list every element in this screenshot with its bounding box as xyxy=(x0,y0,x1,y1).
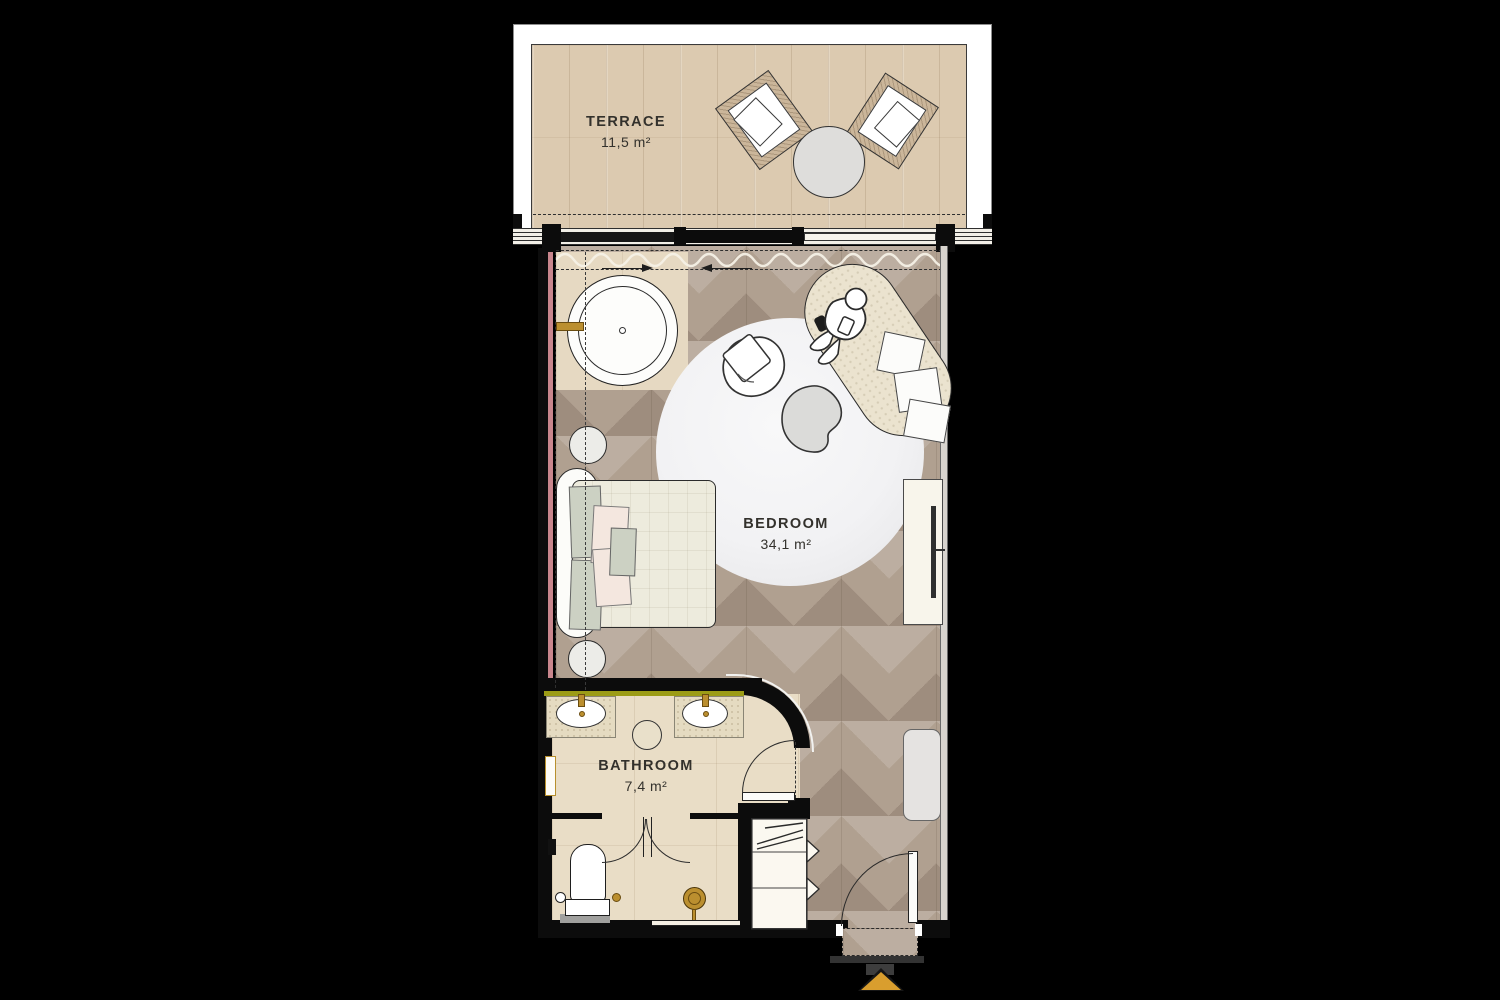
entry-jamb-right xyxy=(915,924,922,936)
slide-arrow-left-line xyxy=(712,268,752,269)
closet-left-wall xyxy=(738,803,752,932)
toilet-bowl xyxy=(570,844,606,902)
sliding-glass-panel-left xyxy=(558,232,678,242)
bathroom-door-leaf xyxy=(742,792,795,801)
tv-mount xyxy=(936,549,945,551)
bedroom-label: BEDROOM 34,1 m² xyxy=(706,515,866,553)
coffee-table xyxy=(779,383,849,455)
terrace-name: TERRACE xyxy=(546,113,706,133)
slide-arrow-left-head xyxy=(701,264,712,272)
floor-drain xyxy=(612,893,621,902)
toilet-paper-holder xyxy=(548,839,556,855)
fixed-glass-panel xyxy=(804,233,936,241)
partition-wall-left xyxy=(552,813,602,819)
door-mullion-right xyxy=(792,227,804,246)
door-mullion-left xyxy=(674,227,686,246)
entry-threshold xyxy=(842,928,918,956)
slide-arrow-right-line xyxy=(602,268,642,269)
closet xyxy=(751,818,821,930)
bathroom-area: 7,4 m² xyxy=(566,777,726,795)
terrace-edge-dashed-line xyxy=(533,214,965,215)
bathroom-door-closed-dash xyxy=(795,742,796,798)
terrace-area: 11,5 m² xyxy=(546,133,706,151)
sliding-glass-panel-center xyxy=(680,230,798,243)
left-wall-dashed-line xyxy=(555,252,556,688)
vanity-counter-edge xyxy=(544,691,744,696)
left-wall-pink-accent xyxy=(548,250,553,690)
partition-wall-right xyxy=(690,813,740,819)
flush-button xyxy=(555,892,566,903)
floor-plan: TERRACE 11,5 m² xyxy=(0,0,1500,1000)
sink-faucet-right xyxy=(702,694,709,707)
entry-shadow-strip xyxy=(830,956,924,963)
curtain-track-band xyxy=(556,250,942,270)
wall-stub-left xyxy=(542,224,561,252)
slide-arrow-right-head xyxy=(642,264,653,272)
section-dashed-line xyxy=(585,252,586,690)
nightstand-top xyxy=(569,426,607,464)
shower-head-ring xyxy=(688,892,701,905)
shower-glass xyxy=(652,920,740,926)
bedroom-area: 34,1 m² xyxy=(706,535,866,553)
bedroom-name: BEDROOM xyxy=(706,515,866,535)
tv xyxy=(931,506,936,598)
entry-arrow xyxy=(861,972,901,990)
bathroom-label: BATHROOM 7,4 m² xyxy=(566,757,726,795)
towel-rail xyxy=(545,756,556,796)
curtain-wave xyxy=(556,251,942,269)
sink-faucet-left xyxy=(578,694,585,707)
tub-faucet xyxy=(556,322,584,331)
bedroom-left-wall xyxy=(538,248,548,690)
person-figure xyxy=(800,282,880,372)
vanity-stool xyxy=(632,720,662,750)
bathroom-name: BATHROOM xyxy=(566,757,726,777)
terrace-label: TERRACE 11,5 m² xyxy=(546,113,706,151)
daybed-pillow xyxy=(903,399,951,444)
sink-drain-right xyxy=(703,711,709,717)
sink-drain-left xyxy=(579,711,585,717)
luggage-bench xyxy=(903,729,941,821)
terrace-round-table xyxy=(793,126,865,198)
tv-console xyxy=(903,479,943,625)
nightstand-bottom xyxy=(568,640,606,678)
pillow-sage-small xyxy=(609,528,637,577)
bathtub-drain xyxy=(619,327,626,334)
toilet-base xyxy=(565,899,610,916)
